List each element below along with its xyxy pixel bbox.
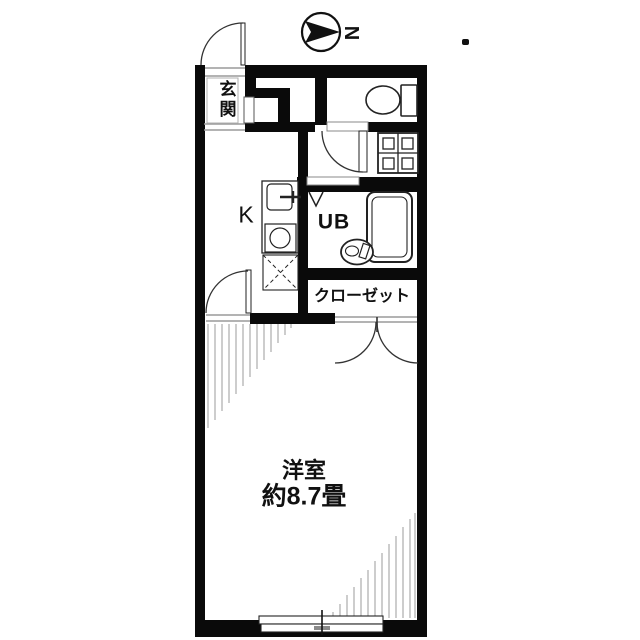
closet-double-doors	[335, 317, 418, 363]
hatch-lines-se	[333, 513, 415, 618]
kitchen-label: K	[238, 204, 253, 227]
bath-folding-door-mark	[309, 192, 323, 206]
toilet-icon	[366, 85, 417, 116]
entrance-label: 玄関	[218, 80, 235, 120]
toilet-door-sill	[327, 122, 368, 131]
hatch-lines-nw	[208, 324, 291, 428]
north-label: N	[341, 26, 361, 40]
floor-plan-canvas: 玄関 K UB クローゼット 洋室 約8.7畳 N	[0, 0, 640, 640]
entrance-door	[201, 23, 245, 65]
unit-bath-label: UB	[318, 212, 350, 233]
kitchen-unit	[262, 181, 301, 290]
north-arrow-icon	[302, 13, 340, 51]
closet-label: クローゼット	[314, 289, 410, 305]
floor-plan-drawing	[0, 0, 640, 640]
kitchen-room-door	[206, 270, 251, 313]
dashed-x-square-icon	[263, 255, 298, 290]
sliding-window	[259, 610, 383, 635]
shoe-cabinet	[244, 97, 254, 123]
main-room-label: 洋室	[282, 460, 326, 482]
ink-dot	[462, 39, 469, 45]
washing-machine-pan-icon	[378, 133, 418, 173]
main-room-size-label: 約8.7畳	[262, 485, 347, 510]
toilet-door	[322, 131, 367, 172]
bath-door-recess	[307, 177, 359, 185]
washbasin-icon	[341, 240, 373, 265]
